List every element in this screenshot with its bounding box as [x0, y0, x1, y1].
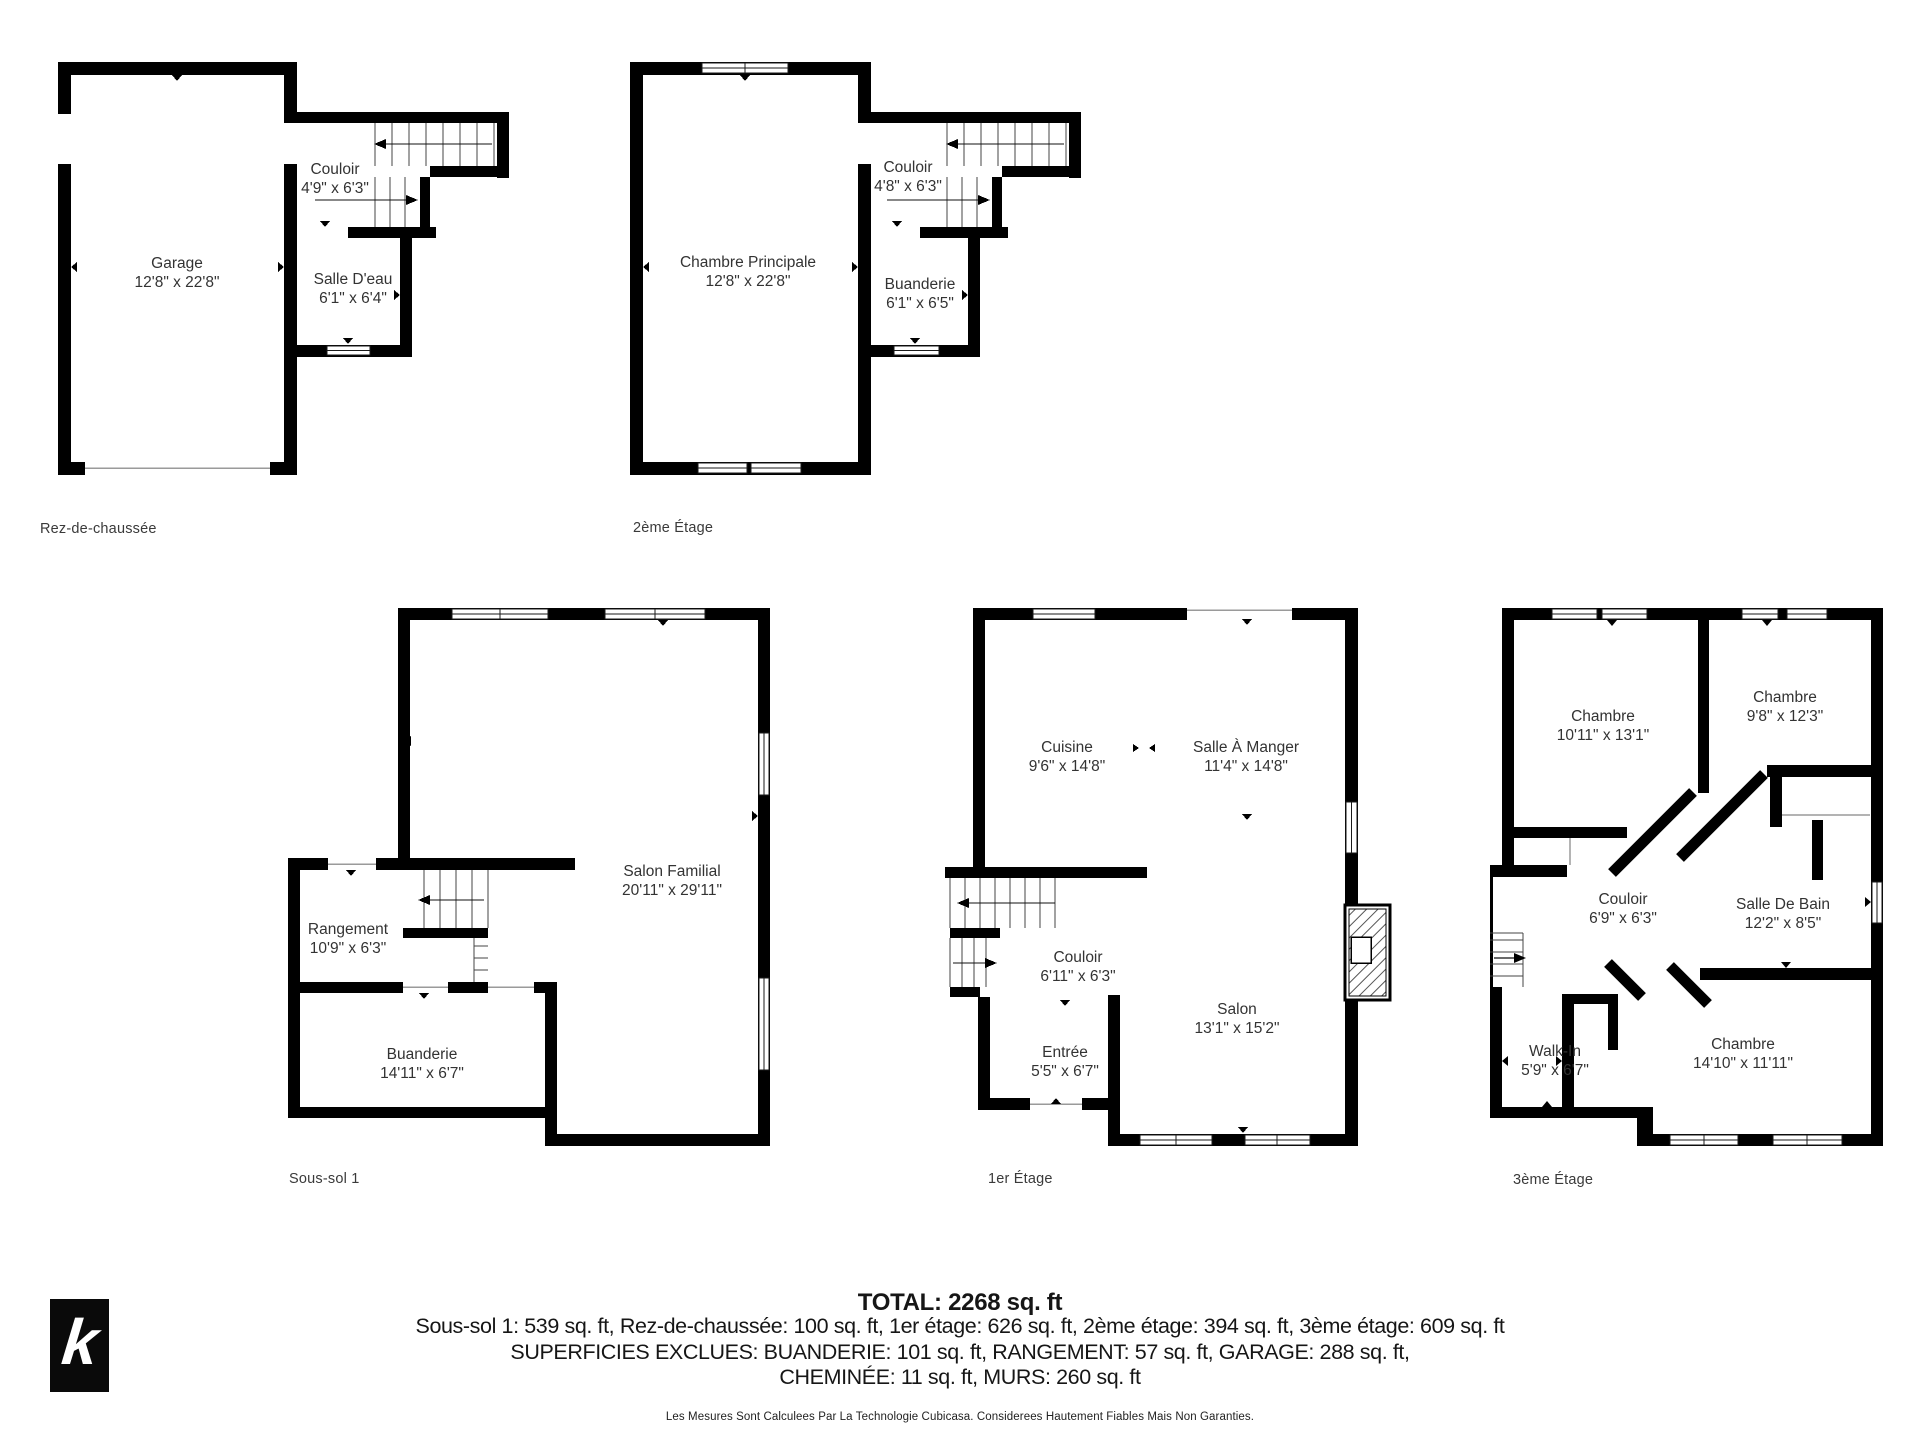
floorplan-rez-de-chaussee: Garage 12'8" x 22'8" Couloir 4'9" x 6'3"… [56, 60, 511, 484]
room-label-couloir-2e: Couloir 4'8" x 6'3" [874, 158, 942, 196]
floor-label-1er-etage: 1er Étage [988, 1171, 1053, 1187]
floorplan-sous-sol-1: Salon Familial 20'11" x 29'11" Rangement… [288, 606, 793, 1156]
room-label-couloir-1er: Couloir 6'11" x 6'3" [1040, 948, 1115, 986]
room-label-chambre-2: Chambre 9'8" x 12'3" [1747, 688, 1823, 726]
floor-label-rez-de-chaussee: Rez-de-chaussée [40, 521, 157, 537]
floor-label-3eme-etage: 3ème Étage [1513, 1172, 1593, 1188]
room-label-garage: Garage 12'8" x 22'8" [134, 254, 219, 292]
rez-de-chaussee-drawing [56, 60, 511, 484]
staircase [418, 870, 488, 982]
room-label-salle-de-bain: Salle De Bain 12'2" x 8'5" [1736, 895, 1830, 933]
room-label-couloir-3e: Couloir 6'9" x 6'3" [1589, 890, 1657, 928]
room-label-buanderie-ss1: Buanderie 14'11" x 6'7" [380, 1045, 464, 1083]
floorplan-3eme-etage: Chambre 10'11" x 13'1" Chambre 9'8" x 12… [1484, 606, 1904, 1156]
room-label-salon: Salon 13'1" x 15'2" [1194, 1000, 1279, 1038]
room-label-buanderie-2e: Buanderie 6'1" x 6'5" [885, 275, 956, 313]
room-label-salle-deau: Salle D'eau 6'1" x 6'4" [314, 270, 393, 308]
floor-label-2eme-etage: 2ème Étage [633, 520, 713, 536]
1er-etage-drawing [945, 606, 1405, 1156]
excluded-areas-text-2: CHEMINÉE: 11 sq. ft, MURS: 260 sq. ft [0, 1365, 1920, 1390]
walls [58, 62, 509, 475]
floor-label-sous-sol-1: Sous-sol 1 [289, 1171, 360, 1187]
room-label-salon-familial: Salon Familial 20'11" x 29'11" [622, 862, 722, 900]
staircase [1490, 933, 1526, 987]
chimney [1345, 905, 1390, 1000]
windows [452, 609, 769, 1070]
total-area-text: TOTAL: 2268 sq. ft [0, 1289, 1920, 1317]
floorplan-sheet: { "branding": { "logo_letter": "k" }, "f… [0, 0, 1920, 1440]
disclaimer-text: Les Mesures Sont Calculees Par La Techno… [0, 1411, 1920, 1423]
room-label-chambre-3: Chambre 14'10" x 11'11" [1693, 1035, 1793, 1073]
floorplan-2eme-etage: Chambre Principale 12'8" x 22'8" Couloir… [628, 60, 1085, 484]
cubicasa-logo: k [50, 1299, 109, 1392]
room-label-salle-a-manger: Salle À Manger 11'4" x 14'8" [1193, 738, 1299, 776]
room-label-entree: Entrée 5'5" x 6'7" [1031, 1043, 1099, 1081]
room-label-cuisine: Cuisine 9'6" x 14'8" [1029, 738, 1105, 776]
room-label-couloir-rdc: Couloir 4'9" x 6'3" [301, 160, 369, 198]
logo-letter: k [59, 1310, 101, 1374]
room-label-walk-in: Walk-In 5'9" x 6'7" [1521, 1042, 1589, 1080]
floor-areas-text: Sous-sol 1: 539 sq. ft, Rez-de-chaussée:… [0, 1314, 1920, 1339]
excluded-areas-text-1: SUPERFICIES EXCLUES: BUANDERIE: 101 sq. … [0, 1340, 1920, 1365]
floorplan-1er-etage: Cuisine 9'6" x 14'8" Salle À Manger 11'4… [945, 606, 1405, 1156]
room-label-chambre-principale: Chambre Principale 12'8" x 22'8" [680, 253, 816, 291]
room-label-chambre-1: Chambre 10'11" x 13'1" [1557, 707, 1649, 745]
windows [327, 346, 370, 355]
walls [945, 608, 1358, 1146]
room-label-rangement: Rangement 10'9" x 6'3" [308, 920, 388, 958]
